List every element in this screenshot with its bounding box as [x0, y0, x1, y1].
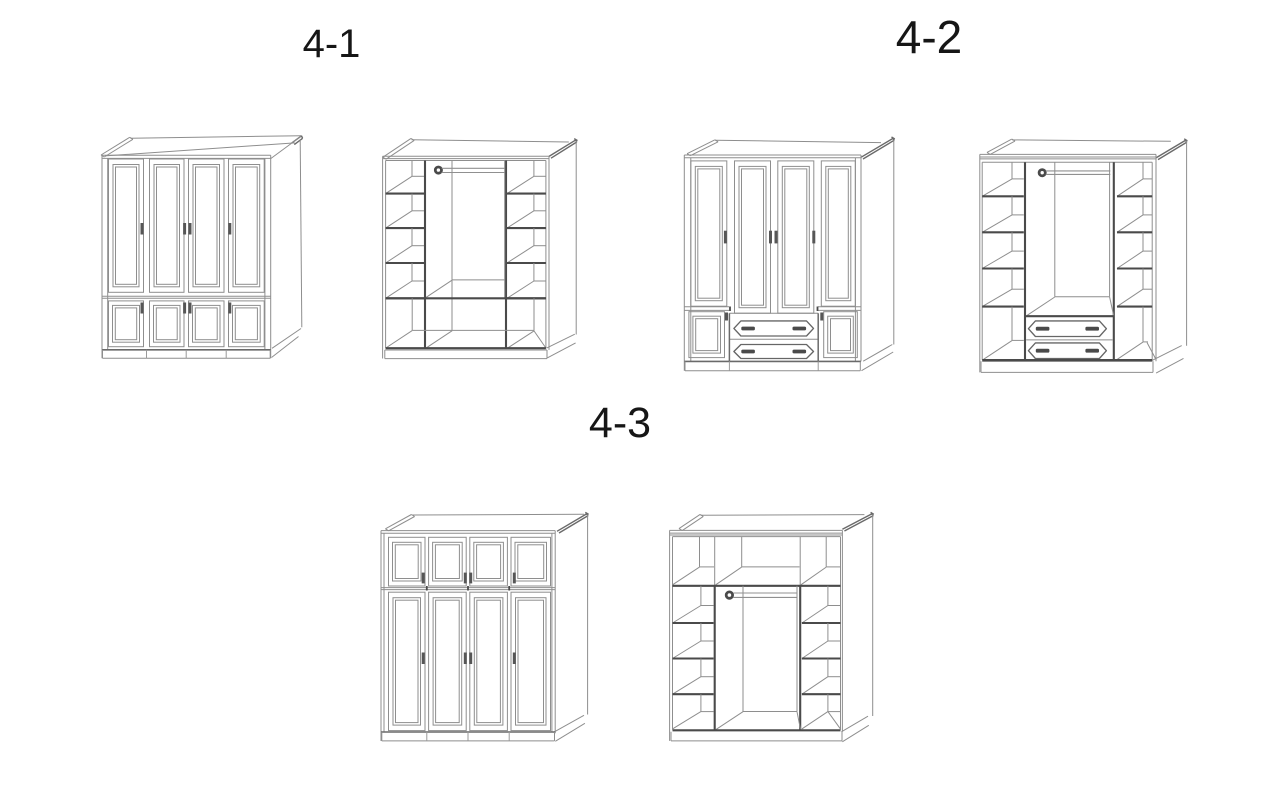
svg-text:4-3: 4-3: [589, 399, 651, 447]
svg-text:4-1: 4-1: [303, 22, 361, 66]
svg-text:4-2: 4-2: [896, 11, 962, 63]
